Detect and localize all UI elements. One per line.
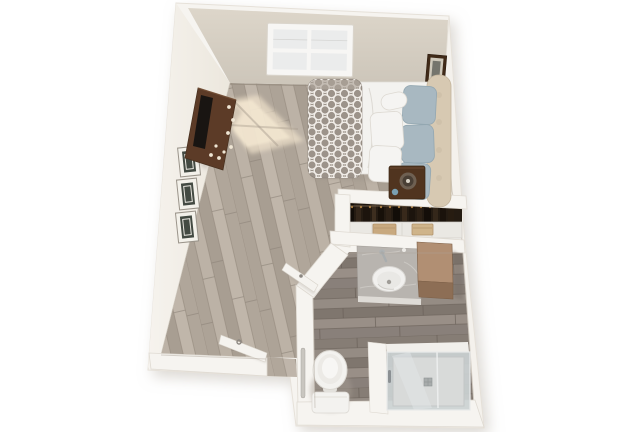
closet-basket [412,224,433,235]
nightstand [389,166,425,199]
entry-threshold [266,357,297,377]
shower-handle [388,370,391,383]
grab-bar [301,348,305,398]
sink-drain [387,280,391,284]
floor-plan-image [0,0,630,432]
bathroom-door-handle [299,274,303,278]
window-pane [311,53,347,71]
window-pane [273,52,307,70]
shower-drain [424,378,432,386]
floor-plan-svg [0,0,630,432]
cabinet-front [418,281,453,299]
cabinet-top [417,242,453,283]
vanity [357,246,421,305]
window [266,23,353,77]
cup [392,189,398,195]
toilet-tank [312,392,349,413]
shower-left-wall [368,342,388,414]
shower [368,342,470,414]
soap [402,248,406,252]
